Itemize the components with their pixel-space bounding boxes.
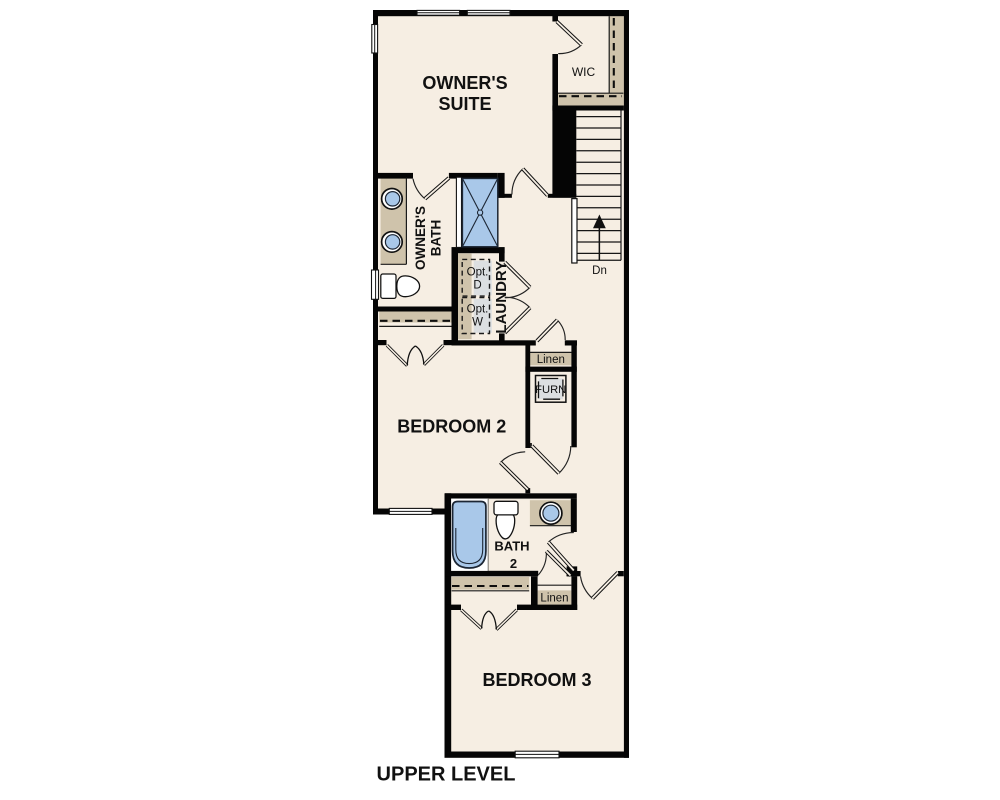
svg-text:2: 2 bbox=[510, 556, 517, 571]
svg-text:BATH: BATH bbox=[494, 539, 529, 554]
svg-text:BEDROOM 3: BEDROOM 3 bbox=[482, 670, 591, 690]
svg-text:Linen: Linen bbox=[537, 354, 565, 366]
svg-text:D: D bbox=[473, 280, 481, 292]
svg-text:FURN: FURN bbox=[535, 384, 566, 396]
svg-text:BEDROOM 2: BEDROOM 2 bbox=[397, 416, 506, 436]
svg-text:LAUNDRY: LAUNDRY bbox=[493, 261, 510, 334]
svg-text:Linen: Linen bbox=[540, 593, 568, 605]
svg-text:Opt.: Opt. bbox=[467, 304, 489, 316]
svg-text:W: W bbox=[472, 317, 483, 329]
svg-text:WIC: WIC bbox=[572, 65, 596, 79]
svg-text:BATH: BATH bbox=[429, 220, 444, 257]
svg-text:UPPER LEVEL: UPPER LEVEL bbox=[377, 764, 516, 786]
svg-text:OWNER'S: OWNER'S bbox=[422, 73, 507, 93]
svg-text:OWNER'S: OWNER'S bbox=[413, 206, 428, 270]
svg-text:SUITE: SUITE bbox=[438, 94, 491, 114]
svg-text:Opt.: Opt. bbox=[467, 267, 489, 279]
svg-text:Dn: Dn bbox=[592, 265, 607, 277]
